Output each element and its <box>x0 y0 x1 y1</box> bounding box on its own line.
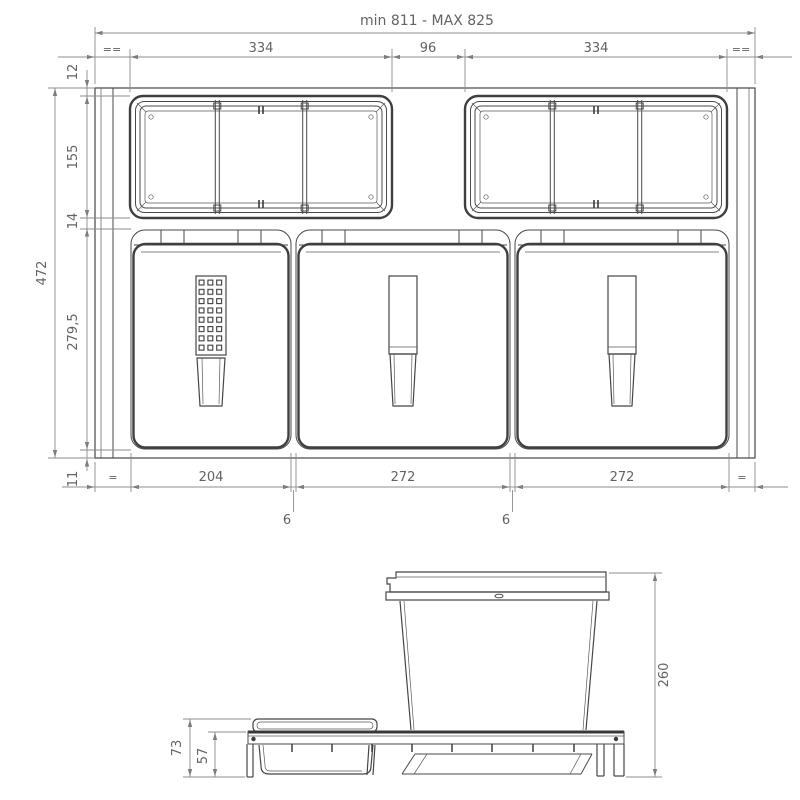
dim-label-bin2-width: 272 <box>391 470 416 485</box>
waste-bin-3 <box>515 230 729 449</box>
rail-foot-left <box>247 744 253 777</box>
side-tray <box>253 719 377 775</box>
technical-drawing-page: min 811 - MAX 825 == 334 96 334 == 12 15… <box>0 0 800 800</box>
rail-screw-right <box>614 737 618 741</box>
dim-label-frame-height: 57 <box>196 748 211 765</box>
dim-label-equal-top-left: == <box>103 43 121 56</box>
clip-mark <box>594 106 598 208</box>
dim-label-overall-width: min 811 - MAX 825 <box>360 13 494 29</box>
dim-label-center-gap: 96 <box>420 41 437 56</box>
dim-label-mid-gap: 14 <box>66 213 81 230</box>
technical-drawing: min 811 - MAX 825 == 334 96 334 == 12 15… <box>0 0 800 800</box>
dim-label-tray-left-width: 334 <box>249 41 274 56</box>
tray-divider <box>214 100 221 214</box>
lid-handle <box>389 276 417 406</box>
dim-label-equal-bottom-right: = <box>737 471 746 484</box>
dim-label-gap2: 6 <box>502 513 510 528</box>
side-view <box>247 572 624 777</box>
dim-label-bin-height: 260 <box>657 663 672 688</box>
tray-divider <box>549 100 556 214</box>
top-view <box>95 88 755 458</box>
tray-divider <box>301 100 308 214</box>
dim-label-tray-right-width: 334 <box>584 41 609 56</box>
dim-label-back-gap: 11 <box>66 471 81 488</box>
rail-slots <box>292 744 574 752</box>
dim-label-bin3-width: 272 <box>610 470 635 485</box>
dim-label-tray-depth: 155 <box>66 145 81 170</box>
waste-bin-1 <box>131 230 291 449</box>
dimensions-top-view: min 811 - MAX 825 == 334 96 334 == 12 15… <box>35 13 792 528</box>
tray-left <box>130 96 392 218</box>
vent-grille <box>196 276 226 355</box>
rail-foot-right <box>597 744 624 776</box>
dim-label-equal-top-right: == <box>732 43 750 56</box>
lid-handle <box>197 358 225 406</box>
dim-label-front-gap: 12 <box>66 64 81 81</box>
lid-handle <box>608 276 636 406</box>
tray-divider <box>636 100 643 214</box>
dim-label-gap1: 6 <box>283 513 291 528</box>
dim-label-tray-total-height: 73 <box>170 740 185 757</box>
waste-bin-2 <box>296 230 510 449</box>
rail-screw-left <box>251 737 255 741</box>
dim-label-equal-bottom-left: = <box>108 471 117 484</box>
dim-label-total-depth: 472 <box>35 261 50 286</box>
clip-mark <box>259 106 263 208</box>
tray-right <box>465 96 727 218</box>
dim-label-bin1-width: 204 <box>199 470 224 485</box>
dim-label-bin-depth: 279,5 <box>66 313 81 350</box>
drawer-outline <box>95 88 755 458</box>
